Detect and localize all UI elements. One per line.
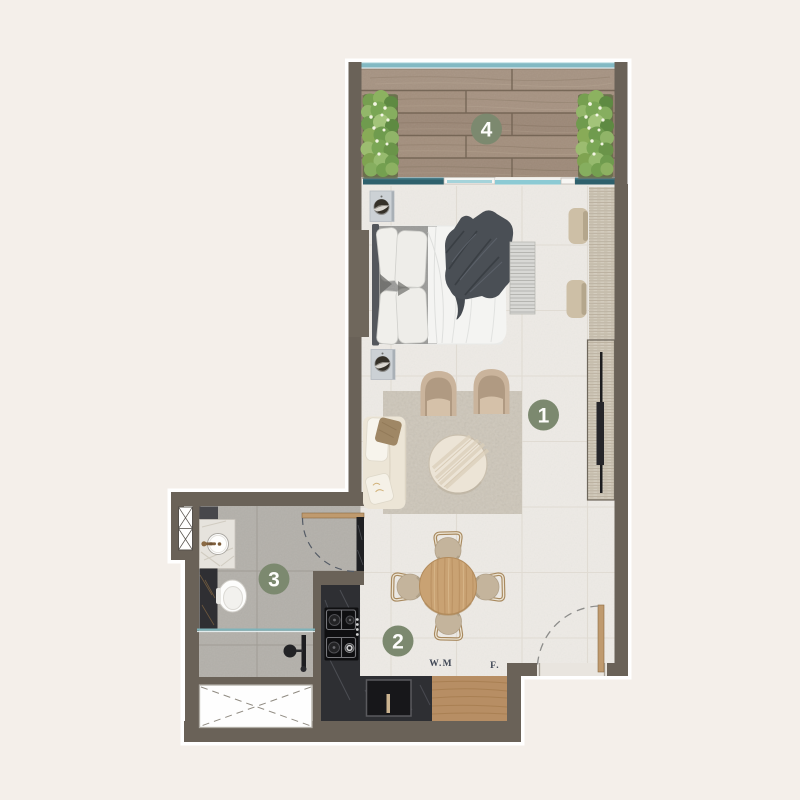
svg-text:1: 1: [538, 405, 550, 428]
svg-text:F.: F.: [490, 661, 500, 671]
svg-text:W.M: W.M: [429, 659, 453, 669]
svg-text:2: 2: [392, 631, 404, 654]
svg-text:4: 4: [481, 119, 493, 142]
svg-text:3: 3: [268, 569, 280, 592]
